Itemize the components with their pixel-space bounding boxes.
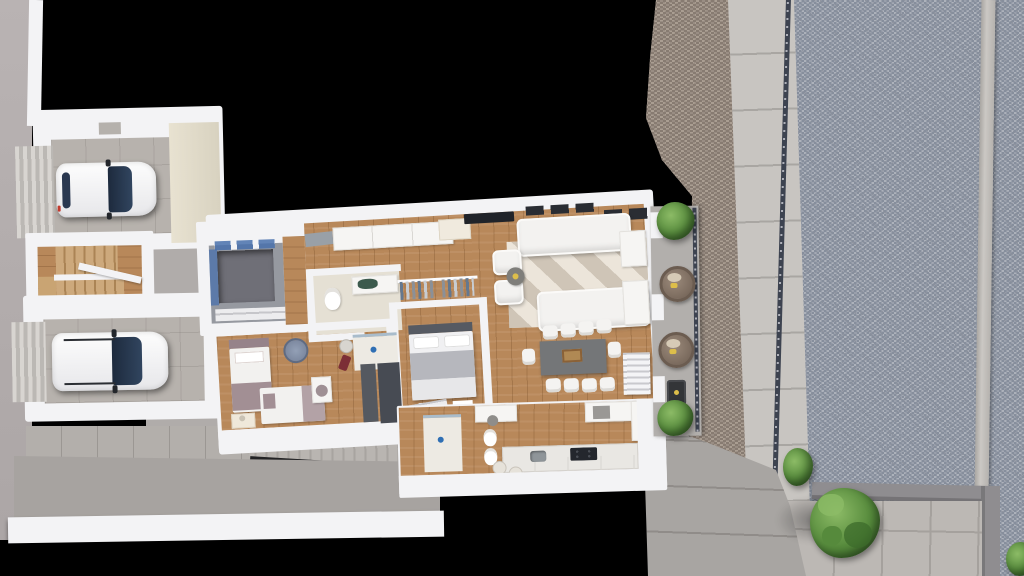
- retaining-wall-vertical: [981, 486, 1000, 576]
- cooktop: [570, 447, 597, 461]
- balcony-railing: [692, 208, 699, 432]
- car-2-mirror-top: [112, 329, 117, 337]
- master-duvet: [410, 350, 475, 381]
- dining-chair: [599, 377, 615, 392]
- master-pillow-left: [413, 336, 440, 349]
- garage-1-vent: [99, 122, 121, 134]
- dining-chair: [582, 378, 598, 393]
- car-1-mirror-bottom: [107, 213, 112, 220]
- wicker-chair-1: [659, 266, 695, 302]
- wicker-cushion: [667, 273, 681, 282]
- right-wall-unit-1: [619, 230, 647, 267]
- balcony-bush-bottom: [657, 400, 693, 436]
- balcony-bush-top: [656, 202, 695, 241]
- toilet-2: [483, 429, 496, 446]
- tree-foliage-light: [818, 494, 844, 516]
- car-2: [52, 331, 169, 391]
- master-duvet-foot: [411, 377, 476, 401]
- car-1-taillight: [58, 206, 61, 212]
- master-pillow-right: [444, 334, 471, 347]
- dining-chair-end-left: [522, 348, 536, 365]
- clothes-rail-2: [442, 278, 475, 298]
- car-1-rear-window: [62, 172, 71, 209]
- dining-chair: [542, 325, 558, 340]
- sofa-top: [516, 213, 632, 257]
- dining-chair: [545, 378, 561, 393]
- dining-chair-end-right: [607, 341, 621, 358]
- dining-centerpiece: [562, 349, 583, 363]
- wicker-pillow: [669, 349, 676, 354]
- dining-chair: [578, 321, 594, 336]
- kids-bed-v-pillow: [234, 351, 264, 364]
- dining-chair: [596, 319, 612, 334]
- railing-balusters: [693, 208, 698, 432]
- wicker-chair-2: [658, 332, 694, 368]
- car-2-roof-rail-bottom: [64, 382, 115, 385]
- kids-bed-h-pillow: [263, 393, 276, 409]
- balcony-planter-3: [653, 376, 665, 402]
- louver-bench: [623, 352, 651, 395]
- toilet-1: [324, 287, 341, 310]
- wood-wardrobe: [282, 236, 307, 325]
- car-1-windshield: [108, 166, 133, 212]
- kitchen-sink: [530, 451, 546, 462]
- garage-door-2: [11, 322, 46, 403]
- dining-chair: [560, 323, 576, 338]
- garage-door-1: [15, 146, 55, 239]
- balcony-planter-2: [652, 294, 664, 320]
- right-wall-unit-2: [622, 280, 650, 325]
- floorplan-render: [0, 0, 1024, 576]
- wicker-cushion: [666, 339, 680, 348]
- tree-foliage-dark: [844, 522, 872, 548]
- stair-void-opening: [217, 249, 275, 303]
- car-1: [56, 161, 157, 217]
- stair-void-room: [196, 218, 308, 336]
- bathroom-2-floor: [423, 417, 463, 472]
- car-1-mirror-top: [106, 159, 111, 166]
- bbq-knob: [674, 390, 679, 395]
- balcony: [650, 206, 701, 437]
- wicker-pillow: [670, 283, 677, 288]
- l-unit-panel: [593, 406, 610, 419]
- dining-chair: [563, 378, 579, 393]
- car-2-windshield: [112, 336, 143, 385]
- south-boundary-wall: [8, 511, 444, 544]
- kitchen-annex: [397, 398, 668, 498]
- car-2-roof-rail-top: [63, 338, 114, 341]
- tree-foliage-mid: [822, 526, 842, 546]
- clothes-rail-1: [400, 280, 437, 300]
- west-boundary-wall: [27, 0, 43, 126]
